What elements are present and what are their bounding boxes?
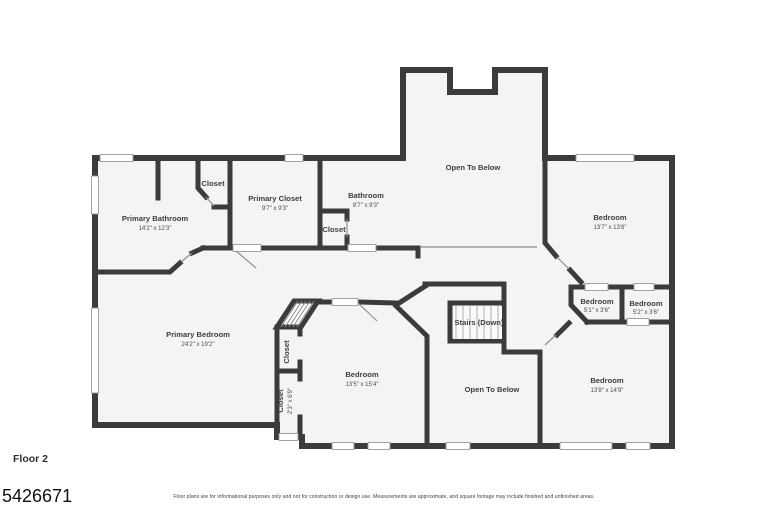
room-dims-primary-bedroom: 24'2" x 19'2" <box>182 342 215 348</box>
exterior-walls <box>95 70 672 446</box>
room-label-primary-closet: Primary Closet <box>248 194 302 203</box>
floor-plan-drawing: Closet Primary Closet 9'7" x 9'3" Bathro… <box>0 0 768 512</box>
room-dims-bathroom: 8'7" x 9'3" <box>353 203 379 209</box>
room-label-closet-upper: Closet <box>282 340 291 364</box>
room-dims-bedroom-small-left: 5'1" x 3'6" <box>584 308 610 314</box>
room-label-primary-bedroom: Primary Bedroom <box>166 330 230 339</box>
room-label-closet-top-left: Closet <box>201 179 225 188</box>
room-label-stairs: Stairs (Down) <box>455 318 504 327</box>
room-label-closet-hall: Closet <box>322 225 346 234</box>
room-dims-bedroom-small-right: 5'2" x 3'6" <box>633 310 659 316</box>
room-dims-primary-closet: 9'7" x 9'3" <box>262 206 288 212</box>
room-dims-bedroom-top-right: 13'7" x 13'8" <box>594 225 627 231</box>
room-label-bedroom-small-left: Bedroom <box>580 297 614 306</box>
disclaimer-text: Floor plans are for informational purpos… <box>0 494 768 500</box>
room-label-bedroom-top-right: Bedroom <box>593 213 627 222</box>
room-label-bathroom: Bathroom <box>348 191 384 200</box>
room-label-bedroom-bottom-left: Bedroom <box>345 370 379 379</box>
room-dims-closet-lower: 2'3" x 6'9" <box>288 388 294 414</box>
floor-label: Floor 2 <box>13 453 48 465</box>
room-label-closet-lower: Closet <box>276 389 285 413</box>
room-label-bedroom-bottom-right: Bedroom <box>590 376 624 385</box>
room-dims-bedroom-bottom-right: 13'8" x 14'9" <box>591 388 624 394</box>
room-label-open-to-below-bottom: Open To Below <box>465 385 520 394</box>
room-dims-bedroom-bottom-left: 13'5" x 15'4" <box>346 382 379 388</box>
room-label-bedroom-small-right: Bedroom <box>629 299 663 308</box>
room-label-open-to-below-top: Open To Below <box>446 163 501 172</box>
room-dims-primary-bathroom: 14'2" x 12'3" <box>139 226 172 232</box>
floor-plan-page: Closet Primary Closet 9'7" x 9'3" Bathro… <box>0 0 768 512</box>
room-label-primary-bathroom: Primary Bathroom <box>122 214 189 223</box>
